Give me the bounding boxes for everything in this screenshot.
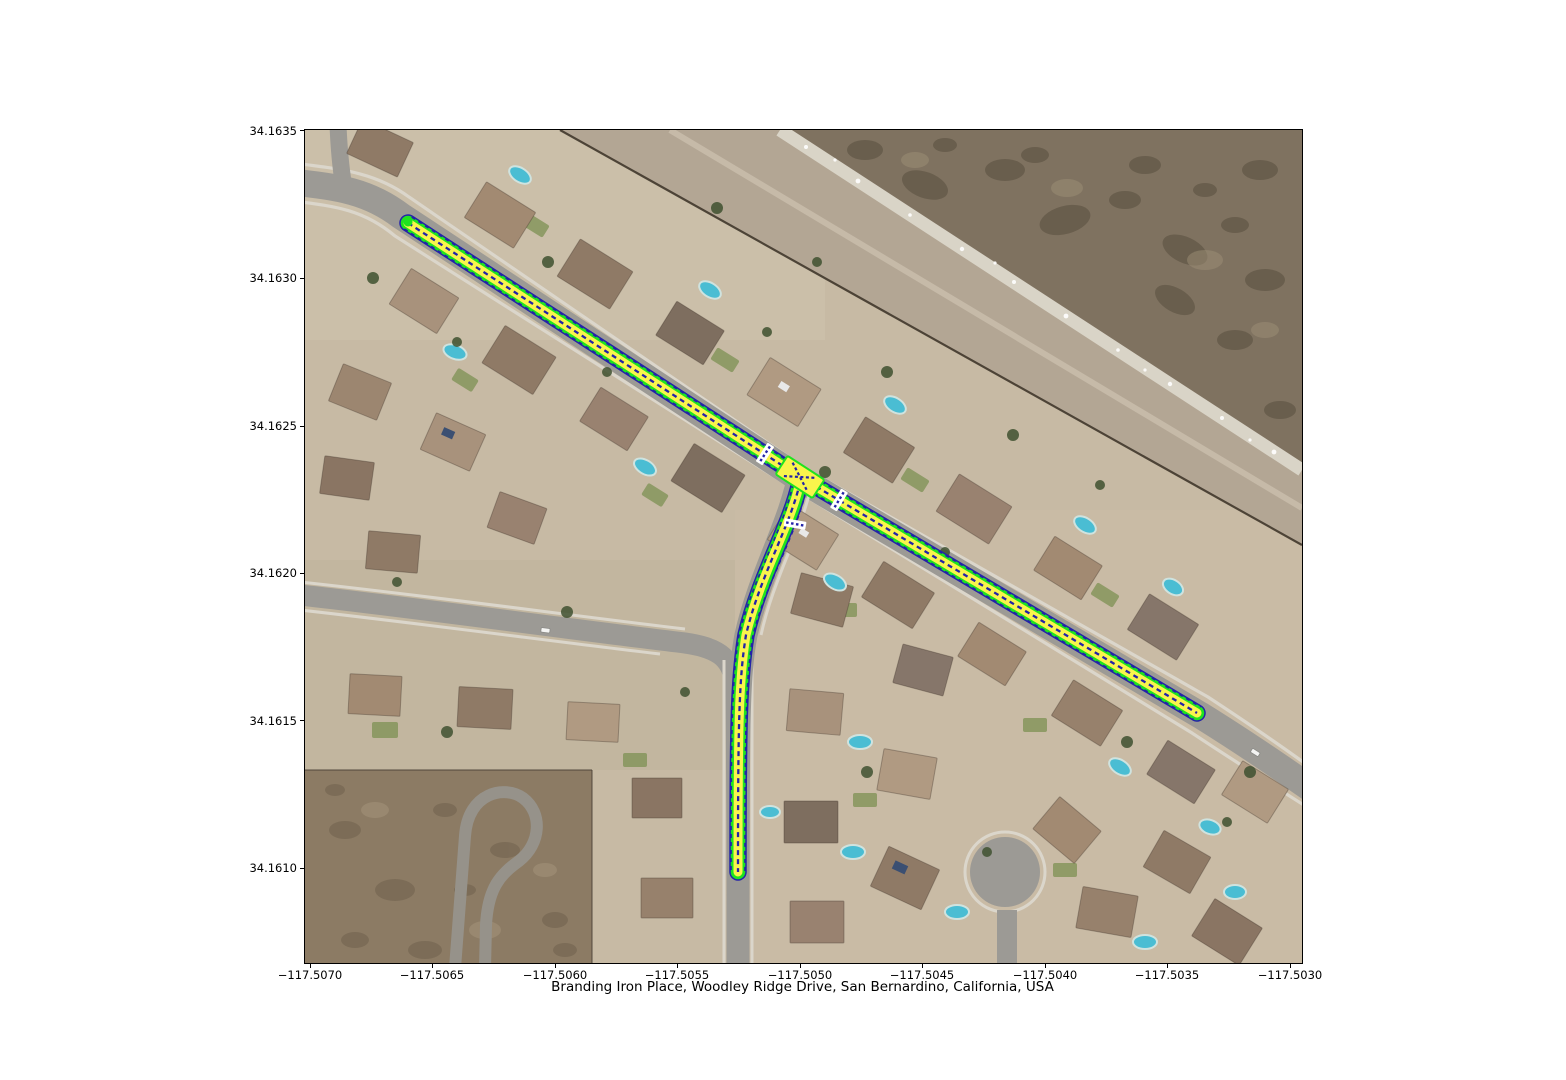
matplotlib-figure: 34.1635 34.1630 34.1625 34.1620 34.1615 … [0, 0, 1566, 1080]
x-tick-mark [555, 964, 556, 968]
y-tick-label: 34.1625 [227, 419, 297, 433]
y-tick-label: 34.1610 [227, 861, 297, 875]
aerial-map-plot [304, 129, 1303, 964]
aerial-map-svg [305, 130, 1302, 963]
x-tick-mark [1167, 964, 1168, 968]
x-tick-mark [310, 964, 311, 968]
x-tick-mark [922, 964, 923, 968]
dirt-lot [305, 770, 592, 963]
route-start-dot [404, 218, 413, 227]
y-tick-label: 34.1635 [227, 124, 297, 138]
x-tick-mark [432, 964, 433, 968]
y-tick-label: 34.1620 [227, 566, 297, 580]
x-tick-mark [1290, 964, 1291, 968]
x-tick-mark [1045, 964, 1046, 968]
y-tick-label: 34.1630 [227, 271, 297, 285]
cul-de-sac-bulb [970, 837, 1040, 907]
y-tick-label: 34.1615 [227, 714, 297, 728]
figure-title: Branding Iron Place, Woodley Ridge Drive… [304, 979, 1301, 996]
road-spur-north [338, 130, 345, 194]
x-tick-mark [800, 964, 801, 968]
x-tick-mark [677, 964, 678, 968]
